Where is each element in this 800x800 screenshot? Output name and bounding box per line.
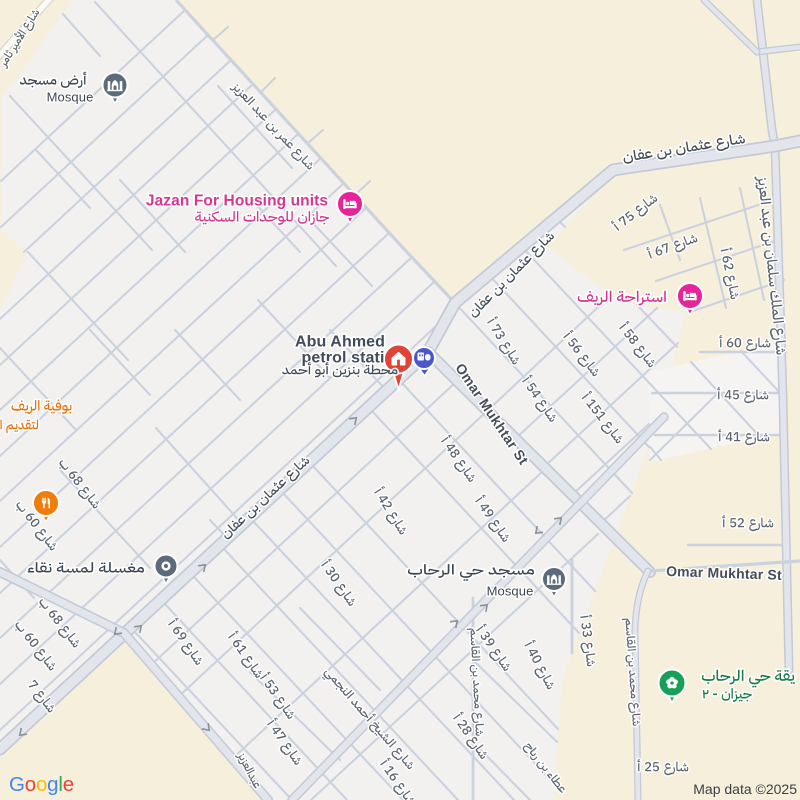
svg-text:Mosque: Mosque [47,90,94,105]
svg-text:Jazan For Housing units: Jazan For Housing units [146,192,328,209]
svg-text:Mosque: Mosque [487,584,534,599]
svg-text:Abu Ahmed: Abu Ahmed [295,334,385,351]
